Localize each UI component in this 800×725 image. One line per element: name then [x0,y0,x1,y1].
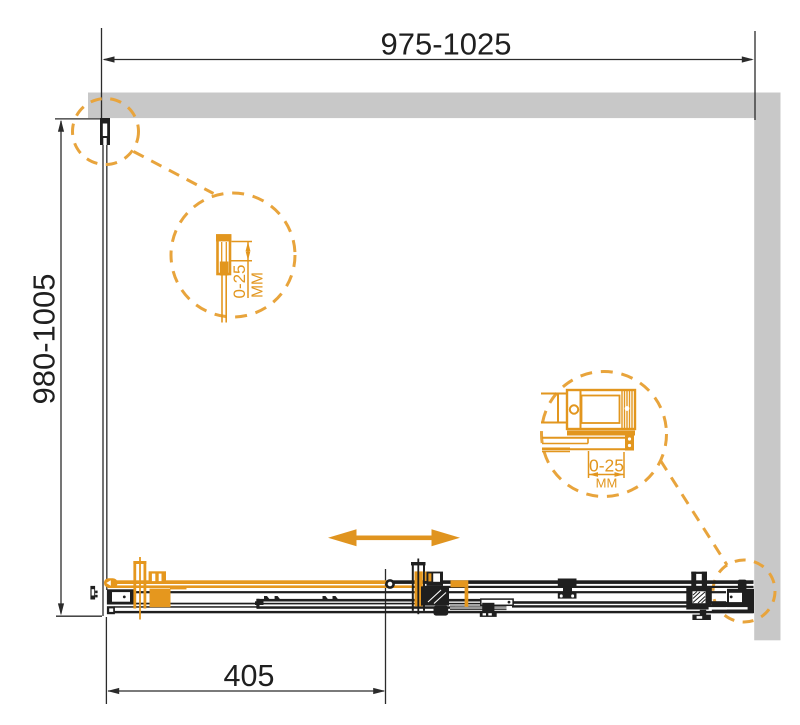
svg-text:ММ: ММ [250,272,267,298]
svg-text:980-1005: 980-1005 [27,273,62,404]
svg-text:975-1025: 975-1025 [380,27,511,62]
svg-text:ММ: ММ [596,476,618,491]
svg-text:0-25: 0-25 [230,264,249,298]
svg-text:405: 405 [224,659,275,693]
svg-text:0-25: 0-25 [589,456,624,476]
